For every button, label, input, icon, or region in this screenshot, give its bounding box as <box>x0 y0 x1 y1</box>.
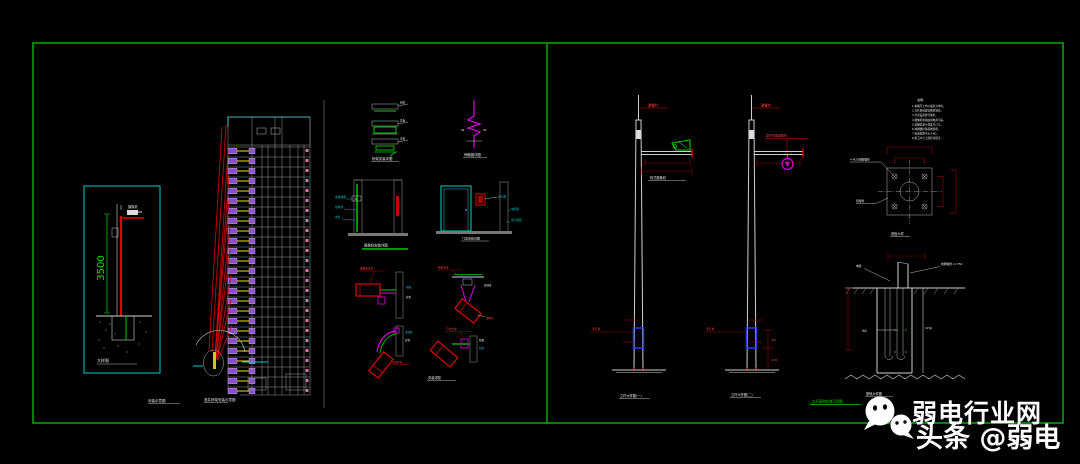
callout-cable <box>213 352 216 369</box>
plate-dims <box>887 147 956 213</box>
wall-label-1: 金属线槽 <box>335 195 346 199</box>
cam-br-label-2: 线槽 <box>479 338 485 342</box>
cam-br-label-1: 万向支架 <box>446 327 457 331</box>
foundation-cable-label: 电缆 <box>856 264 862 268</box>
inset-device-label: 摄像机 <box>128 204 138 209</box>
door-caption: 门禁安装详图 <box>462 236 480 241</box>
cam-tl-label-2: 线槽 <box>406 285 412 289</box>
building-elevation: 安装示意图 竖井桥架安装示意图 <box>148 117 310 404</box>
bottom-hatch-zigzag <box>845 375 965 379</box>
cam-bl-label-3: 金属软管 <box>392 360 403 364</box>
note-line: 5.基础混凝土强度为C25。 <box>912 122 943 126</box>
bracket-label-2: 盖板 <box>400 119 406 123</box>
pole1-arm-dims <box>641 159 692 175</box>
pole2-base-dims <box>763 330 773 370</box>
inset-pole-detail: 3500 摄像机 大样图 <box>84 186 160 373</box>
inset-caption: 大样图 <box>97 357 109 363</box>
cam-bl-label-2: 软管 <box>405 338 411 342</box>
foundation-depth-dim <box>845 288 853 350</box>
building-grid <box>228 117 310 395</box>
note-line: 6.地脚螺栓随基础预埋。 <box>912 127 940 131</box>
bracket-label-3: 支架 <box>400 137 406 141</box>
foundation-concrete-label: C25砼 <box>925 326 933 330</box>
ground-hatch <box>846 288 958 294</box>
note-line: 2.立杆采用镀锌钢管制作。 <box>912 109 943 113</box>
building-caption-1: 安装示意图 <box>148 398 166 403</box>
anchor-bolts <box>885 288 905 360</box>
note-line: 8.施工时与土建密切配合。 <box>912 136 943 140</box>
cam-tl-label-1: 摄像机支架 <box>360 267 374 271</box>
pole1-lead-label: 手孔井 <box>592 327 601 331</box>
building-caption-2: 竖井桥架安装示意图 <box>204 397 236 402</box>
cam-bl-label-1: 接线盒 <box>405 330 413 334</box>
plate-caption: 底板大样 <box>891 231 905 236</box>
plate-label-1: 4-M20地脚螺栓 <box>850 158 870 162</box>
foundation-mid-label: 垫层 <box>862 329 868 333</box>
cam-detail-tr: 吊装支架 接线盒 摄像机 <box>437 266 494 324</box>
door-label-2: 电控锁 <box>511 207 519 211</box>
pole2-dome-icon <box>782 155 793 170</box>
pole2-top-label: 室外球型摄像机 <box>766 133 787 138</box>
green-bottom-caption: 立杆基础安装示意图 <box>810 399 861 405</box>
note-line: 1.本图尺寸均以毫米为单位。 <box>912 104 946 108</box>
bracket-label-1: 桥架 <box>400 101 406 105</box>
foundation-caption: 基础大样图 <box>866 391 882 396</box>
joint-caption: 伸缩缝详图 <box>464 152 482 157</box>
note-line: 4.摄像机电源由弱电井引来。 <box>912 118 946 122</box>
door-label-1: 读卡器 <box>498 195 506 199</box>
notes-header: 说明: <box>917 97 924 102</box>
green-caption-text: 立杆基础安装示意图 <box>812 399 843 404</box>
pole1-arm-label: 枪式摄像机 <box>650 175 667 180</box>
joint-dim-right: 40 <box>483 128 487 132</box>
note-line: 3.杆顶设避雷针保护。 <box>912 113 938 117</box>
cams-caption: 安装详图 <box>428 375 441 380</box>
pole2-caption: 立杆大样图(二) <box>731 392 753 397</box>
note-line: 7.接地电阻不大于4Ω。 <box>912 132 939 136</box>
joint-dim-left: 40 <box>461 128 465 132</box>
expansion-joint-detail: 40 40 伸缩缝详图 <box>461 100 487 158</box>
foundation-section: 电缆 地脚螺栓 L=750 垫层 C25砼 <box>845 253 965 397</box>
shaft-wall-detail: 金属线槽 接地线 支架 <box>335 180 408 236</box>
watermark-line-2: 头条 @弱电 <box>916 423 1060 454</box>
wall-label-2: 接地线 <box>335 205 343 209</box>
base-plate-plan: 4-M20地脚螺栓 预埋件 底板大样 <box>850 147 956 237</box>
foundation-hatch-dots <box>98 321 146 352</box>
foundation-bolt-label: 地脚螺栓 L=750 <box>941 262 963 266</box>
cad-drawing: 3500 摄像机 大样图 <box>0 0 1080 464</box>
cam-tr-label-3: 摄像机 <box>486 316 494 320</box>
inset-dim-label: 3500 <box>96 255 107 280</box>
notes-block: 说明: 1.本图尺寸均以毫米为单位。 2.立杆采用镀锌钢管制作。 3.杆顶设避雷… <box>912 97 946 140</box>
cams-header: 摄像机安装详图 <box>364 243 388 248</box>
building-floors <box>228 147 310 394</box>
drawing-frame <box>33 43 1063 423</box>
pole1-caption: 立杆大样图(一) <box>620 393 642 398</box>
pole-elevation-1: 避雷针 枪式摄像机 手孔井 立杆大样图(一) <box>590 95 692 399</box>
cam-br-label-3: 软管 <box>479 346 485 350</box>
pole2-dim-1: 500 <box>771 338 776 342</box>
pole1-tip-label: 避雷针 <box>648 103 659 108</box>
wechat-icon <box>864 397 914 440</box>
plate-label-2: 预埋件 <box>856 199 865 203</box>
tray-bracket-details: 桥架 盖板 支架 桥架安装详图 <box>371 101 408 162</box>
cam-tr-label-1: 吊装支架 <box>438 266 449 270</box>
bracket-caption: 桥架安装详图 <box>372 156 393 161</box>
cam-tl-label-3: 软管 <box>406 295 412 299</box>
door-label-3: 出门按钮 <box>511 218 522 222</box>
cam-tr-label-2: 接线盒 <box>484 283 492 287</box>
watermark: 弱电行业网 头条 @弱电 <box>864 397 1060 455</box>
pole1-camera-icon <box>672 140 690 150</box>
pole2-dim-2: 1000 <box>771 358 778 362</box>
door-access-detail: 读卡器 电控锁 出门按钮 门禁安装详图 <box>436 182 522 241</box>
camera-mount-details: 摄像机安装详图 摄像机支架 线槽 软管 吊装支 <box>356 243 494 381</box>
pole2-tip-label: 避雷针 <box>761 103 772 108</box>
cam-detail-tl: 摄像机支架 线槽 软管 <box>356 267 412 319</box>
pole2-lead-label: 手孔井 <box>706 327 715 331</box>
pole-elevation-2: 避雷针 室外球型摄像机 手孔井 500 1000 立杆大样图(二) <box>705 95 808 398</box>
cad-drawing-canvas: 3500 摄像机 大样图 <box>0 0 1080 464</box>
cam-detail-br: 万向支架 线槽 软管 <box>430 327 484 367</box>
cam-detail-bl: 接线盒 软管 金属软管 <box>369 326 413 378</box>
pole2-arm-dims <box>757 159 800 166</box>
wall-label-3: 支架 <box>335 215 341 219</box>
